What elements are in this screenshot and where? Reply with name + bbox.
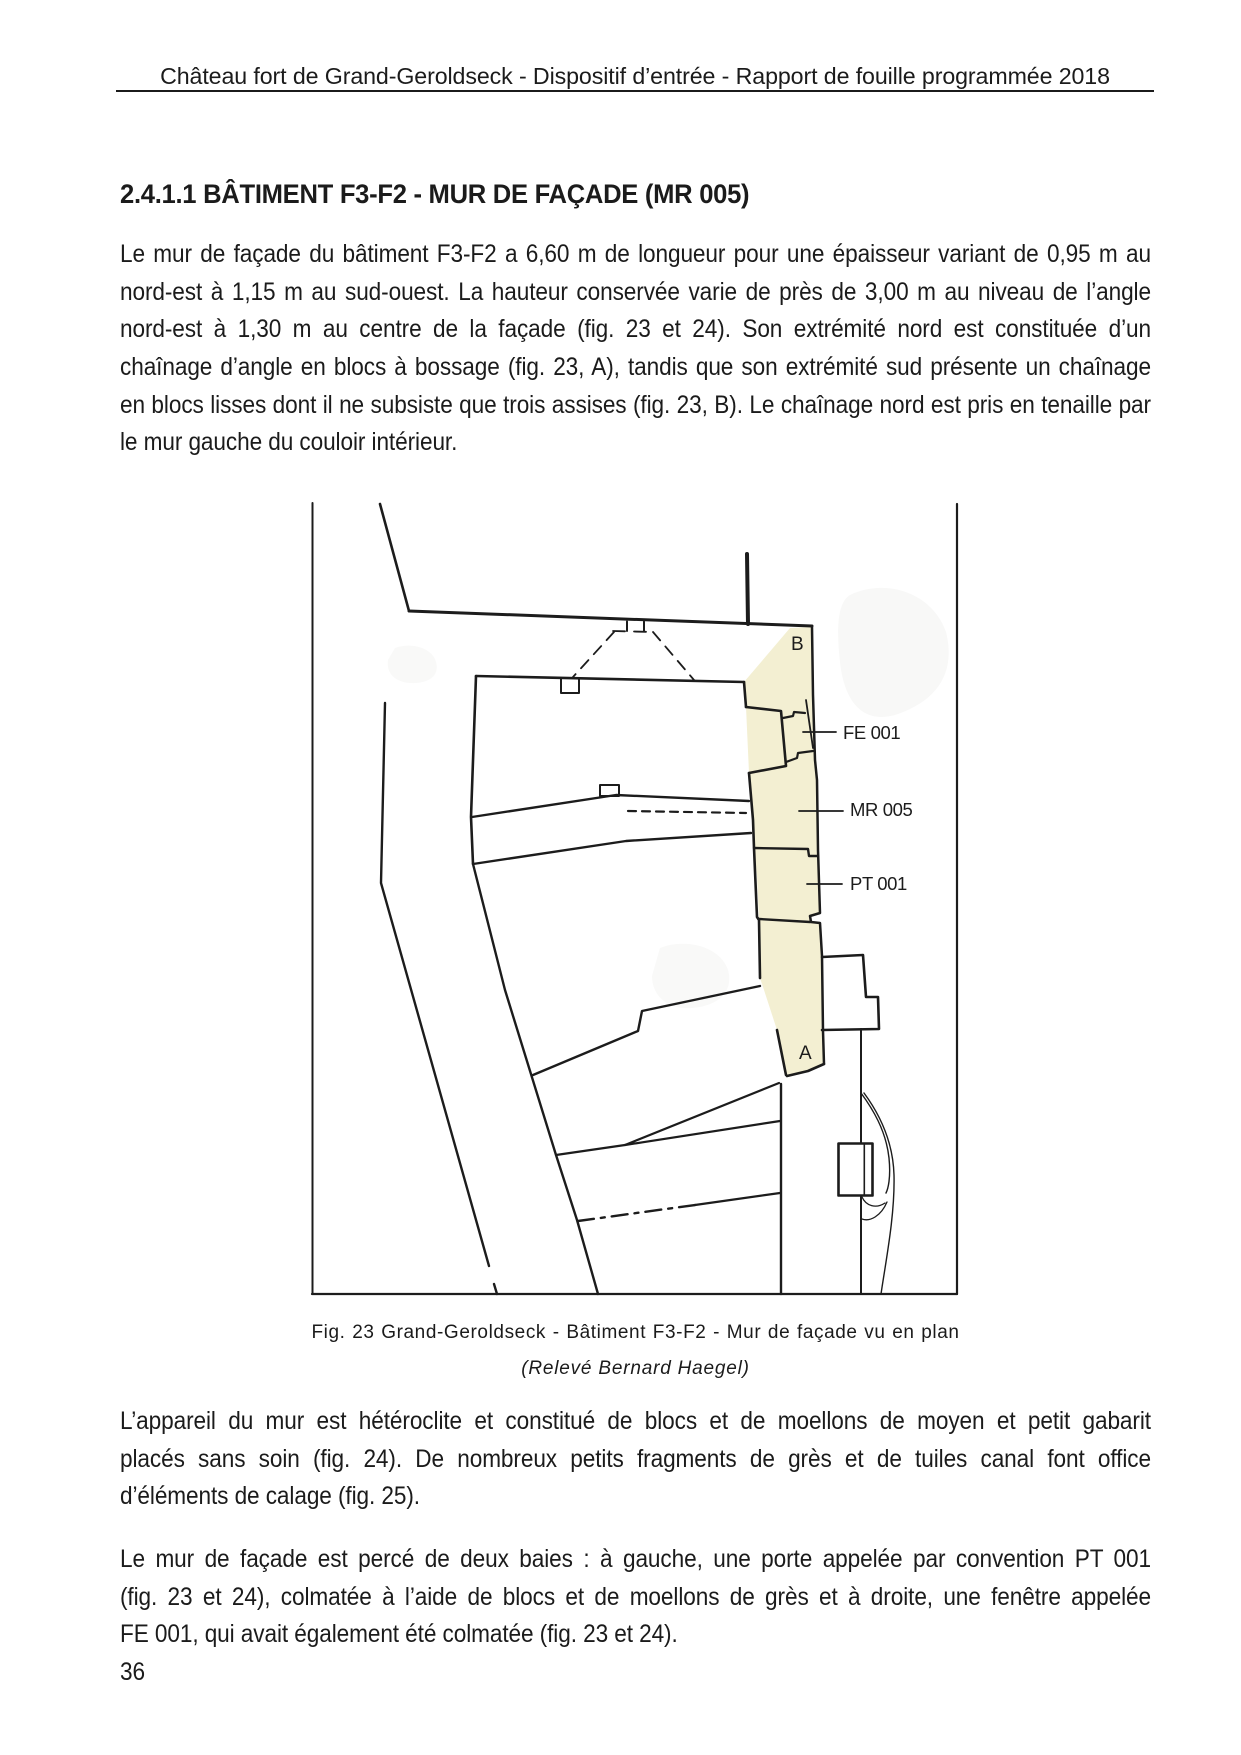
svg-text:B: B bbox=[791, 634, 804, 655]
svg-text:A: A bbox=[799, 1043, 812, 1064]
svg-text:PT 001: PT 001 bbox=[850, 873, 907, 894]
svg-text:FE 001: FE 001 bbox=[843, 722, 900, 743]
svg-text:MR 005: MR 005 bbox=[850, 799, 912, 820]
